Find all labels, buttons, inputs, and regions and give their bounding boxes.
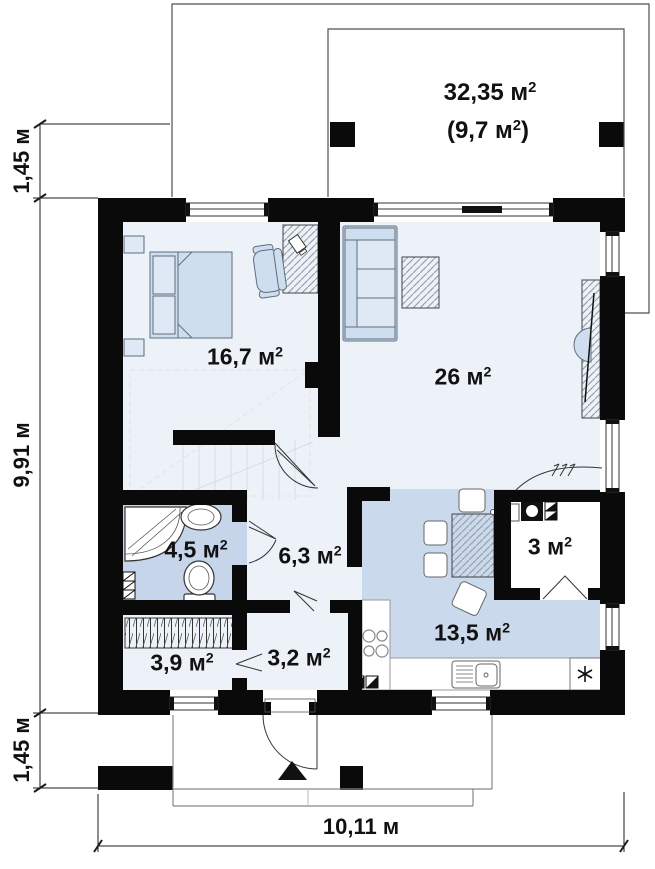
kitchen-sink-icon <box>452 661 500 688</box>
entrance-door <box>263 699 317 769</box>
dimension-bottom-left: 1,45 м <box>9 717 35 782</box>
living-area-label: 26 м2 <box>435 364 492 391</box>
terrace-area-label: 32,35 м2 <box>444 79 537 107</box>
desk-icon <box>283 225 318 293</box>
window-kitchen-bottom <box>432 697 490 710</box>
bedroom-area-label: 16,7 м2 <box>207 344 283 371</box>
window-wardrobe-bottom <box>170 697 218 710</box>
toilet-icon <box>184 561 215 606</box>
dimension-top-left: 1,45 м <box>9 128 35 193</box>
hall-area-label: 6,3 м2 <box>278 543 341 570</box>
window-bedroom <box>186 203 268 216</box>
bathroom-area-label: 4,5 м2 <box>164 537 227 564</box>
coffee-table-icon <box>402 257 439 308</box>
bath-sink-icon <box>181 504 221 530</box>
floor-plan-drawing <box>0 0 655 869</box>
boiler-icon <box>521 502 557 521</box>
entry-area-label: 3,2 м2 <box>267 645 330 672</box>
kitchen-area-label: 13,5 м2 <box>434 620 510 647</box>
wardrobe-area-label: 3,9 м2 <box>150 650 213 677</box>
pantry-area-label: 3 м2 <box>528 534 572 561</box>
window-pantry-right <box>606 604 619 650</box>
dining-table-icon <box>452 514 494 577</box>
fridge-icon <box>570 658 601 690</box>
window-kitchen-right <box>606 420 619 492</box>
entrance-arrow-icon <box>278 761 307 780</box>
floor-plan: 32,35 м2 (9,7 м2) 16,7 м2 26 м2 4,5 м2 6… <box>0 0 655 869</box>
bed-icon <box>150 252 232 338</box>
window-living-top <box>374 203 553 216</box>
radiator-icon <box>123 572 135 599</box>
dimension-left: 9,91 м <box>9 422 35 487</box>
sofa-icon <box>343 226 397 341</box>
porch-outline <box>173 715 492 806</box>
window-living-right <box>606 232 619 276</box>
dimension-bottom: 10,11 м <box>323 814 399 840</box>
terrace-covered-area-label: (9,7 м2) <box>447 117 529 145</box>
wardrobe-rail-icon <box>125 618 243 648</box>
